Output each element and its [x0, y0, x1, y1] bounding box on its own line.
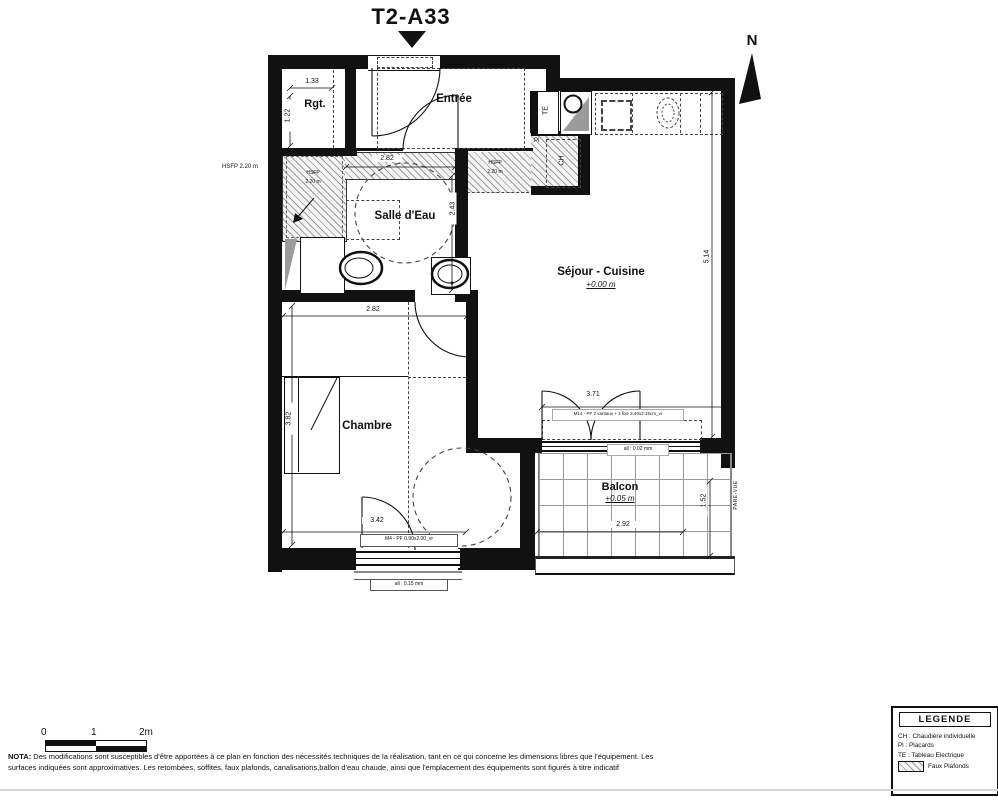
washbasin — [432, 260, 468, 288]
room-label-chambre: Chambre — [327, 420, 407, 432]
dim-sde-w: 2.82 — [372, 155, 402, 162]
scale-tick-2m: 2m — [139, 727, 153, 738]
page-bottom-rule — [0, 789, 998, 791]
room-label-sejour: Séjour - Cuisine — [551, 266, 651, 278]
label-pare-vue: PARE-VUE — [733, 473, 739, 517]
scale-tick-0: 0 — [41, 727, 47, 738]
room-label-entree: Entrée — [414, 93, 494, 105]
north-arrow-icon — [739, 53, 761, 104]
kitchen-sink — [563, 96, 589, 132]
dim-sejour-door: 3.71 — [578, 391, 608, 398]
dim-chambre-h: 3.82 — [286, 403, 293, 435]
scale-bar-segment — [96, 746, 146, 751]
nota-text: NOTA: Des modifications sont susceptible… — [8, 752, 656, 774]
cooktop — [657, 98, 679, 128]
scale-bar-segment — [46, 741, 96, 746]
hsfp-left-h: 2.20 m — [288, 179, 338, 185]
tag-balcon-sill: all : 0.02 mm — [607, 444, 669, 456]
legend-faux-plafonds-label: Faux Plafonds — [928, 763, 969, 770]
room-label-balcon: Balcon — [585, 481, 655, 493]
chambre-door-arc — [415, 302, 470, 357]
nota-label: NOTA: — [8, 752, 31, 761]
room-label-rgt: Rgt. — [285, 98, 345, 110]
legend-item-pl: Pl : Placards — [893, 740, 997, 750]
dim-sejour-h: 5.14 — [704, 241, 711, 273]
legend-title: LEGENDE — [899, 712, 991, 727]
dim-balcon-w: 2.92 — [608, 521, 638, 528]
hsfp-left: HSFP — [288, 170, 338, 176]
entrance-marker-icon — [398, 31, 426, 48]
dim-balcon-h: 1.52 — [701, 485, 708, 517]
scale-bar — [45, 740, 147, 752]
legend-item-te: TE : Tableau Electrique — [893, 749, 997, 759]
door-leaf-triangle — [285, 239, 297, 290]
faux-plafonds-swatch-icon — [898, 761, 924, 772]
level-label-sejour: +0.00 m — [551, 280, 651, 289]
wc-bowl — [340, 252, 382, 284]
legend-box: LEGENDE CH : Chaudière individuelle Pl :… — [891, 706, 998, 796]
dimension-lines — [280, 85, 731, 559]
tag-chambre-sill: all : 0.15 mm — [370, 579, 448, 591]
dim-rgt-h: 1.22 — [285, 100, 292, 132]
dim-rgt-w: 1.33 — [297, 78, 327, 85]
ceiling-arrow — [293, 198, 314, 223]
label-te: TE — [543, 101, 550, 121]
hsfp-right: HSFP — [470, 160, 520, 166]
hsfp-note-outside: HSFP 2.20 m — [222, 164, 258, 170]
legend-item-faux-plafonds: Faux Plafonds — [893, 759, 997, 773]
tag-chambre-window: M4 - PF 0.90x2.00_vr — [360, 534, 458, 547]
label-ch: CH — [559, 151, 566, 171]
room-label-salle-eau: Salle d'Eau — [360, 210, 450, 222]
level-label-balcon: +0.05 m — [585, 494, 655, 503]
hsfp-right-h: 2.20 m — [470, 169, 520, 175]
turning-circle — [413, 448, 511, 546]
floor-plan-canvas: T2-A33 N — [0, 0, 998, 800]
plan-linework — [0, 0, 998, 800]
label-pl: Pl — [534, 138, 539, 144]
legend-item-ch: CH : Chaudière individuelle — [893, 730, 997, 740]
scale-tick-1: 1 — [91, 727, 97, 738]
tag-balcon-window: M14 - PF 2 vantaux + 1 fixe 2.40x2.15cm_… — [552, 409, 684, 421]
dim-chambre-w: 2.82 — [358, 306, 388, 313]
dim-sde-h: 2.43 — [450, 193, 457, 225]
nota-body: Des modifications sont susceptibles d'êt… — [8, 752, 653, 772]
dim-chambre-w2: 3.42 — [362, 517, 392, 524]
